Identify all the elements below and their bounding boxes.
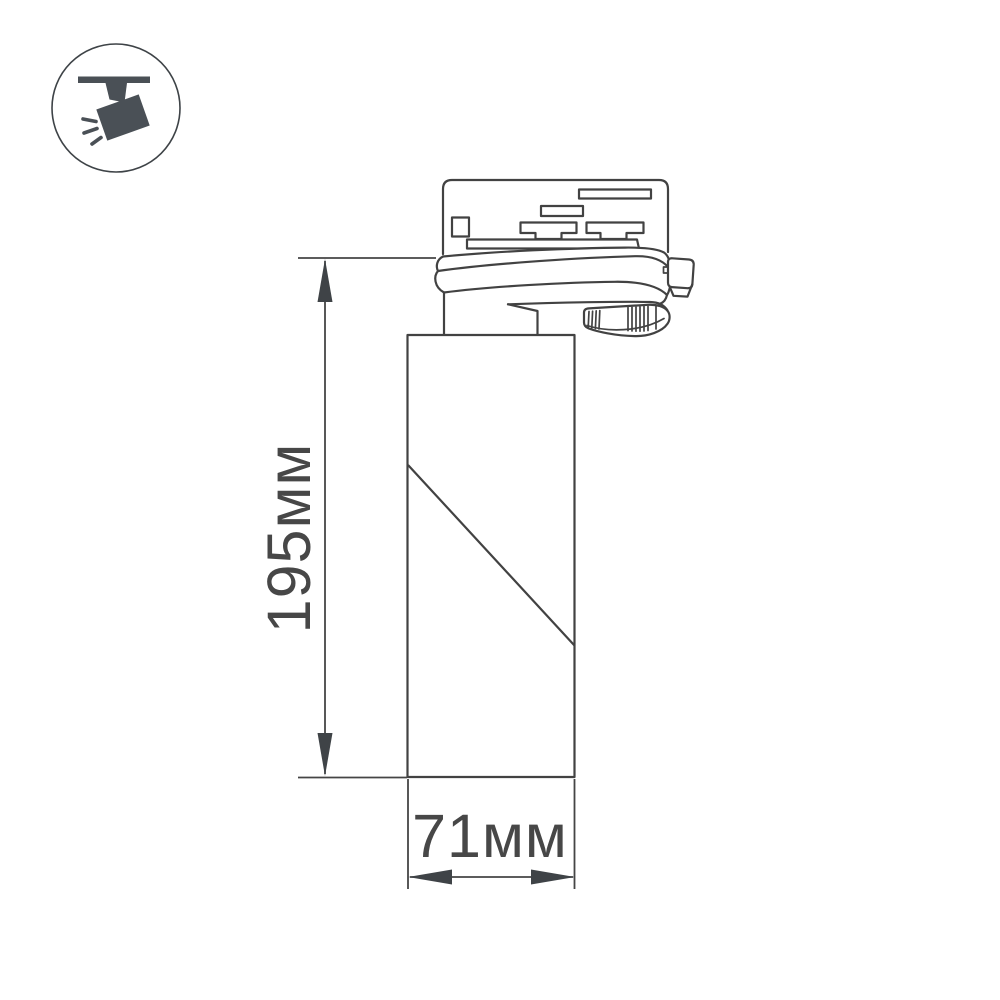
track-adapter-head	[443, 180, 668, 254]
width-arrow-right	[531, 870, 575, 885]
adjustment-knob	[584, 305, 670, 336]
neck-right-line	[508, 304, 538, 334]
latch-front-face	[668, 258, 694, 288]
height-dimension-label: 195мм	[255, 443, 323, 634]
width-dimension-label: 71мм	[412, 802, 568, 870]
height-arrow-down	[318, 733, 333, 776]
diagram-canvas: 195мм 71мм	[0, 0, 1000, 1000]
height-arrow-up	[318, 259, 333, 302]
width-dimension: 71мм	[408, 779, 575, 889]
technical-drawing: 195мм 71мм	[0, 0, 1000, 1000]
flange-left-edge	[435, 257, 444, 293]
lamp-body	[408, 335, 575, 777]
icon-badge	[52, 44, 180, 172]
adapter-flange	[435, 248, 670, 304]
width-arrow-left	[408, 870, 452, 885]
fixture-drawing	[408, 180, 694, 777]
